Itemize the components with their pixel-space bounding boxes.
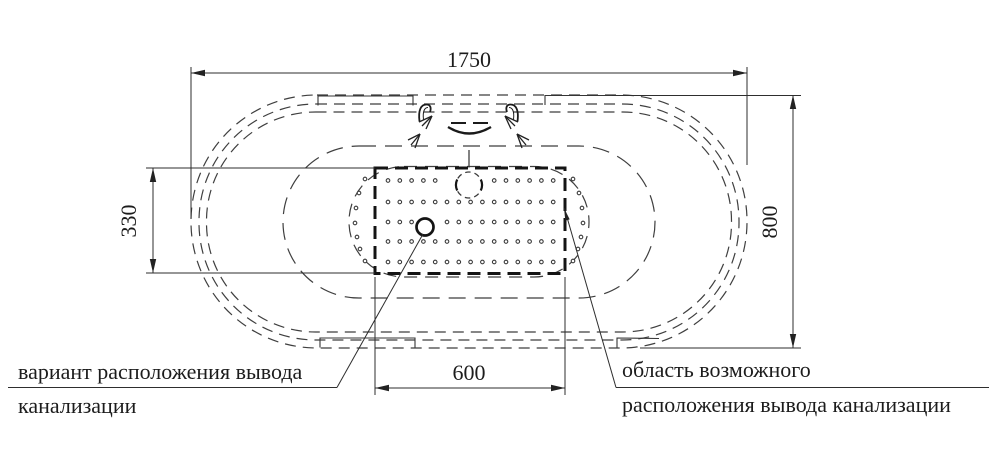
perforation-dot: [398, 240, 402, 244]
perforation-dot: [528, 220, 532, 224]
perforation-dot: [445, 260, 449, 264]
perforation-dot: [481, 220, 485, 224]
perforation-dot: [492, 260, 496, 264]
perforation-dot: [433, 200, 437, 204]
overflow-circle-tick-left: [456, 180, 457, 191]
arrowhead-right: [551, 385, 565, 391]
dim-value-330: 330: [116, 205, 141, 238]
perforation-dot: [481, 240, 485, 244]
perforation-dot: [551, 179, 555, 183]
perforation-dot: [410, 179, 414, 183]
arrowhead-left: [375, 385, 389, 391]
perforation-dot: [398, 260, 402, 264]
perforation-dot: [422, 260, 426, 264]
perforation-dot: [422, 200, 426, 204]
perforation-dot: [353, 221, 357, 225]
dim-zone-330: 330: [116, 168, 375, 273]
perforation-dot: [551, 240, 555, 244]
perforation-dot: [354, 206, 358, 210]
arrowhead-left: [191, 70, 205, 76]
perforation-dot: [398, 179, 402, 183]
note-variant-line1: вариант расположения вывода: [18, 359, 303, 384]
perforation-dot: [581, 221, 585, 225]
arrowhead-top: [150, 168, 156, 182]
perforation-dot: [445, 200, 449, 204]
perforation-dot: [481, 200, 485, 204]
perforation-dot: [492, 220, 496, 224]
bathtub-drawing: 1750 800 330 600 вариант: [0, 0, 999, 460]
perforation-dot: [504, 179, 508, 183]
perforation-dot: [504, 240, 508, 244]
perforation-dot: [528, 200, 532, 204]
perforation-dot: [551, 260, 555, 264]
note-area-line1: область возможного: [622, 357, 811, 382]
perforation-dot: [469, 240, 473, 244]
perforation-dot: [516, 200, 520, 204]
dim-value-600: 600: [453, 360, 486, 385]
perforation-dot: [504, 220, 508, 224]
perforation-dot: [516, 179, 520, 183]
dim-width-800: 800: [612, 95, 801, 348]
perforation-dot: [355, 235, 359, 239]
leader-line: [565, 209, 617, 388]
technical-drawing-sheet: 1750 800 330 600 вариант: [0, 0, 999, 460]
perforation-dots: [353, 177, 585, 264]
perforation-dot: [492, 240, 496, 244]
perforation-dot: [386, 179, 390, 183]
perforation-dot: [481, 260, 485, 264]
perforation-dot: [433, 240, 437, 244]
perforation-dot: [386, 240, 390, 244]
perforation-dot: [457, 220, 461, 224]
perforation-dot: [551, 200, 555, 204]
perforation-dot: [540, 220, 544, 224]
perforation-dot: [433, 179, 437, 183]
perforation-dot: [469, 220, 473, 224]
perforation-dot: [433, 260, 437, 264]
perforation-dot: [386, 260, 390, 264]
perforation-dot: [516, 240, 520, 244]
perforation-dot: [579, 235, 583, 239]
perforation-dot: [492, 200, 496, 204]
perforation-dot: [540, 260, 544, 264]
note-area-line2: расположения вывода канализации: [622, 392, 951, 417]
perforation-dot: [422, 240, 426, 244]
overflow-outlet-dashed-circle: [456, 172, 482, 198]
perforation-dot: [504, 260, 508, 264]
dim-zone-600: 600: [375, 277, 565, 395]
perforation-dot: [504, 200, 508, 204]
label-drain-variant: вариант расположения вывода канализации: [18, 359, 303, 418]
perforation-dot: [577, 191, 581, 195]
perforation-dot: [528, 260, 532, 264]
perforation-dot: [386, 200, 390, 204]
dim-value-1750: 1750: [447, 47, 491, 72]
arrowhead-bottom: [790, 334, 796, 348]
perforation-dot: [410, 240, 414, 244]
deck-fixture: [408, 105, 529, 199]
perforation-dot: [386, 220, 390, 224]
leader-line: [337, 234, 423, 388]
perforation-dot: [398, 220, 402, 224]
perforation-dot: [571, 177, 575, 181]
perforation-dot: [410, 220, 414, 224]
perforation-dot: [445, 240, 449, 244]
arrowhead-bottom: [150, 259, 156, 273]
perforation-dot: [469, 200, 473, 204]
perforation-dot: [540, 200, 544, 204]
perforation-dot: [410, 200, 414, 204]
dim-value-800: 800: [757, 206, 782, 239]
perforation-dot: [528, 240, 532, 244]
perforation-dot: [357, 191, 361, 195]
arrowhead-right: [733, 70, 747, 76]
note-variant-line2: канализации: [18, 393, 137, 418]
arrowhead-top: [790, 95, 796, 109]
perforation-dot: [457, 260, 461, 264]
perforation-dot: [540, 179, 544, 183]
perforation-dot: [528, 179, 532, 183]
perforation-dot: [445, 220, 449, 224]
drain-outlet-circle: [417, 219, 434, 236]
perforation-dot: [492, 179, 496, 183]
perforation-dot: [516, 260, 520, 264]
perforation-dot: [540, 240, 544, 244]
perforation-dot: [580, 206, 584, 210]
perforation-dot: [551, 220, 555, 224]
perforation-dot: [422, 179, 426, 183]
perforation-dot: [363, 259, 367, 263]
perforation-dot: [469, 260, 473, 264]
perforation-dot: [358, 247, 362, 251]
overflow-circle-tick-right: [481, 180, 482, 191]
rim-notches: [318, 96, 659, 348]
perforation-dot: [571, 259, 575, 263]
perforation-dot: [457, 240, 461, 244]
perforation-dot: [516, 220, 520, 224]
perforation-dot: [410, 260, 414, 264]
perforation-dot: [363, 177, 367, 181]
perforation-dot: [398, 200, 402, 204]
perforation-dot: [457, 200, 461, 204]
